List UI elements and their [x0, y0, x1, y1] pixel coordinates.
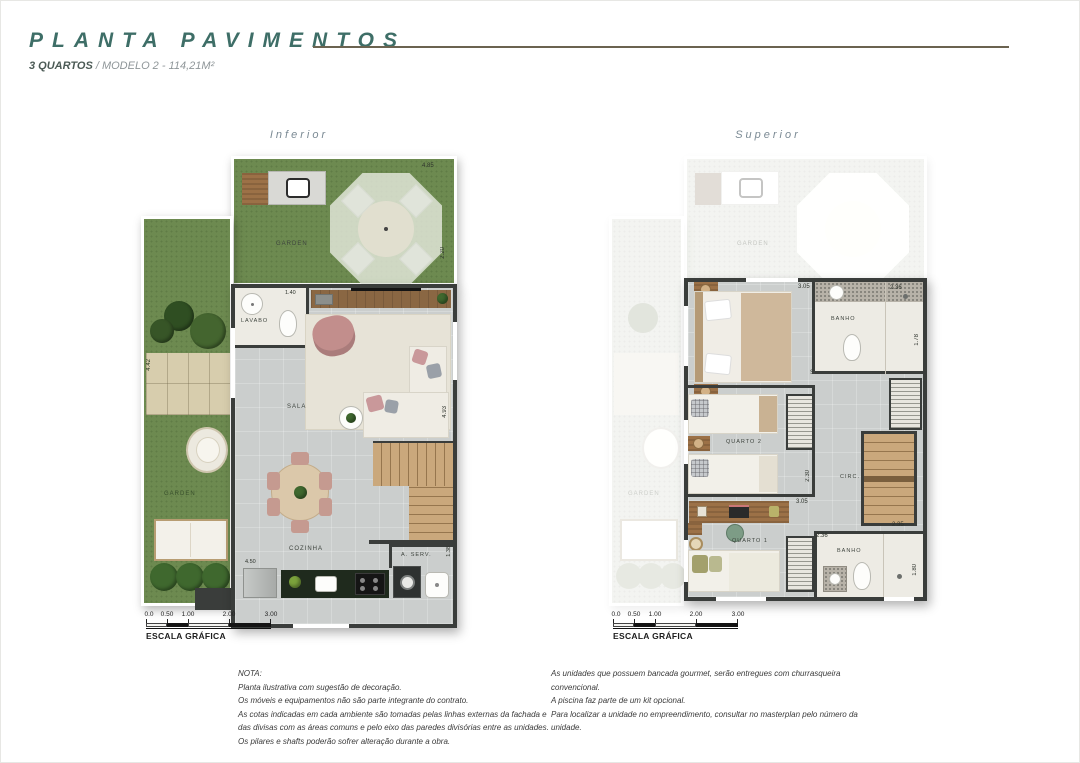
hanging-chair [186, 427, 228, 473]
ghost-grill-counter [721, 171, 779, 205]
note-line: Planta ilustrativa com sugestão de decor… [238, 681, 549, 695]
scale-label: ESCALA GRÁFICA [613, 631, 693, 641]
scale-tick: 0.50 [161, 611, 174, 618]
wall-aserv [389, 544, 453, 547]
window-icon [746, 278, 798, 282]
scale-bar-left: 0.0 0.50 1.00 2.00 3.00 ESCALA GRÁFICA [146, 611, 276, 647]
side-cabinet [688, 523, 702, 535]
room-label-sala: SALA [287, 404, 306, 410]
wall-aserv-stub [389, 544, 392, 568]
dining-chair [319, 498, 332, 516]
bath-divider [883, 534, 884, 597]
pillow [704, 353, 732, 376]
caption-inferior: Inferior [141, 129, 457, 141]
dim-suite-top: 3.05 [798, 284, 810, 290]
scale-bar [146, 623, 271, 629]
dining-chair [267, 498, 280, 516]
laptop-icon [729, 505, 749, 518]
dim-aserv: 1.38 [446, 546, 452, 557]
ghost-bench [620, 519, 678, 561]
subtitle-bold: 3 QUARTOS [29, 60, 93, 72]
plant-icon [190, 313, 226, 349]
garden-left: GARDEN 4.42 [141, 216, 233, 606]
garden-top: GARDEN 4.85 2.20 [231, 156, 457, 286]
ghost-umbrella-set [797, 173, 909, 285]
dining-chair [291, 452, 309, 465]
scale-bar [613, 623, 738, 629]
indoor-inferior: LAVABO 1.40 SALA 4.93 [231, 284, 457, 628]
desk-books [697, 506, 707, 517]
dining-chair [267, 472, 280, 490]
plant-icon [294, 486, 307, 499]
note-line: As unidades que possuem bancada gourmet,… [551, 667, 858, 681]
plant-icon [150, 319, 174, 343]
room-label-cozinha: COZINHA [289, 546, 323, 552]
note-line: convencional. [551, 681, 858, 695]
dim-banho-top: 2.36 [890, 285, 902, 291]
shrub-icon [176, 563, 204, 591]
shrub-icon [150, 563, 178, 591]
ghost-shrub-icon [660, 563, 686, 589]
room-banho-top: BANHO [812, 282, 923, 374]
scale-tick: 1.00 [649, 611, 662, 618]
shower-icon [903, 294, 908, 299]
decor-round [693, 438, 704, 449]
toilet-icon [853, 562, 871, 590]
wall-q2-q1 [688, 494, 814, 497]
umbrella-set [330, 173, 442, 285]
shrub-icon [202, 563, 230, 591]
ghost-room-label-garden-left: GARDEN [628, 491, 660, 497]
quarto2-bed1 [688, 394, 778, 434]
grill-sink-icon [286, 178, 310, 198]
sink-icon [829, 285, 844, 300]
note-line: Os pilares e shafts poderão sofrer alter… [238, 735, 549, 749]
dim-quarto1-top: 3.05 [796, 499, 808, 505]
coffee-table [339, 406, 363, 430]
room-label-garden: GARDEN [276, 241, 308, 247]
window-icon [716, 597, 766, 601]
room-label-banho-bottom: BANHO [837, 548, 862, 554]
garden-bench [154, 519, 228, 561]
burner [373, 586, 378, 591]
closet-quarto2 [786, 394, 814, 450]
caption-superior: Superior [609, 129, 927, 141]
ghost-canopy [797, 173, 909, 285]
bed-duvet [729, 553, 779, 591]
ghost-plant-icon [628, 303, 658, 333]
decor-round [689, 537, 703, 551]
sink-drain [251, 303, 254, 306]
kitchen-counter [281, 570, 389, 598]
ghost-garden-top: GARDEN [684, 156, 927, 286]
dim-kitchen: 4.50 [245, 559, 256, 565]
note-line: As cotas indicadas em cada ambiente são … [238, 708, 549, 722]
scale-tick: 0.0 [144, 611, 153, 618]
stair-landing [864, 476, 914, 482]
subtitle-rest: / MODELO 2 - 114,21M² [93, 60, 214, 72]
bed-headboard [695, 292, 703, 382]
pillow [691, 459, 709, 477]
ghost-hanging-chair [642, 427, 680, 469]
ghost-room-label-garden: GARDEN [737, 241, 769, 247]
toilet-icon [843, 334, 861, 361]
quarto2-bed2 [688, 454, 778, 494]
page-title: PLANTA PAVIMENTOS [29, 29, 406, 53]
window-icon [684, 306, 688, 366]
dim-garden-top: 4.85 [422, 163, 434, 169]
desk [689, 501, 789, 523]
note-line: Os móveis e equipamentos não são parte i… [238, 694, 549, 708]
room-label-garden-left: GARDEN [164, 491, 196, 497]
quarto1-bed [688, 550, 780, 592]
scale-tick: 1.00 [182, 611, 195, 618]
pillow [426, 363, 443, 380]
scale-tick: 2.00 [223, 611, 236, 618]
bath-divider [885, 282, 886, 374]
room-label-quarto2: QUARTO 2 [726, 439, 762, 445]
pillow [691, 399, 709, 417]
pillow [704, 299, 732, 322]
dim-banho-right: 1.78 [914, 334, 920, 346]
bench-divider [190, 523, 191, 557]
room-label-banho-top: BANHO [831, 316, 856, 322]
dim-banho2-right: 1.80 [912, 564, 918, 576]
ghost-pavers [614, 353, 679, 415]
floorplan-superior: GARDEN GARDEN [609, 156, 927, 632]
nightstand [688, 436, 710, 451]
decor-object [315, 294, 333, 305]
dim-garden-left: 4.42 [146, 359, 152, 371]
window-icon [453, 322, 457, 380]
brochure-page: PLANTA PAVIMENTOS 3 QUARTOS / MODELO 2 -… [0, 0, 1080, 763]
plant-icon [437, 293, 448, 304]
scale-label: ESCALA GRÁFICA [146, 631, 226, 641]
ghost-garden-left: GARDEN [609, 216, 684, 606]
stove-icon [355, 573, 385, 595]
grill-shelf [242, 173, 268, 205]
hanging-chair-cushion [196, 437, 220, 463]
stairs-lower-flight [409, 486, 453, 541]
shower-icon [897, 574, 902, 579]
room-label-quarto1: QUARTO 1 [732, 538, 768, 544]
dim-garden-right: 2.20 [440, 247, 446, 259]
bed-duvet [741, 293, 791, 381]
sideboard [311, 290, 451, 308]
bath-counter [823, 566, 847, 592]
stairs-superior [861, 431, 917, 526]
room-label-lavabo: LAVABO [241, 318, 268, 324]
notes-heading: NOTA: [238, 667, 549, 681]
title-rule [313, 46, 1009, 48]
room-lavabo: LAVABO 1.40 [235, 288, 309, 348]
scale-tick: 3.00 [732, 611, 745, 618]
room-label-aserv: A. SERV. [401, 552, 432, 558]
sink-icon [241, 293, 263, 315]
plant-icon [289, 576, 301, 588]
scale-tick: 0.50 [628, 611, 641, 618]
room-label-circ: CIRC. [840, 474, 860, 480]
scale-tick: 2.00 [690, 611, 703, 618]
scale-bar-right: 0.0 0.50 1.00 2.00 3.00 ESCALA GRÁFICA [613, 611, 743, 647]
desk-plant [769, 506, 779, 517]
dim-sala-right: 4.93 [442, 406, 448, 418]
washer-drum [400, 575, 415, 590]
wall-jog [195, 588, 233, 610]
pillow [384, 399, 399, 414]
pavers [146, 353, 230, 415]
grill-counter [268, 171, 326, 205]
notes-right: As unidades que possuem bancada gourmet,… [551, 667, 858, 735]
window-icon [293, 624, 349, 628]
burner [360, 586, 365, 591]
note-line: das divisas com as áreas comuns e pelo e… [238, 721, 549, 735]
umbrella-pole [384, 227, 388, 231]
bed-blanket [759, 456, 777, 492]
floorplan-inferior: GARDEN 4.85 2.20 GARDEN 4.42 [141, 156, 457, 632]
dim-stairs: 2.35 [892, 522, 904, 528]
suite-bed [694, 291, 792, 383]
tub-drain [435, 583, 439, 587]
page-subtitle: 3 QUARTOS / MODELO 2 - 114,21M² [29, 60, 214, 72]
scale-tick: 0.0 [611, 611, 620, 618]
closet-suite [889, 378, 922, 430]
washer-icon [393, 566, 421, 598]
notes-left: NOTA: Planta ilustrativa com sugestão de… [238, 667, 549, 748]
scale-tick: 3.00 [265, 611, 278, 618]
laundry-tub-icon [425, 572, 449, 598]
pillow [709, 556, 722, 572]
window-icon [884, 597, 914, 601]
dim-banho2-left: 2.36 [816, 533, 828, 539]
note-line: Para localizar a unidade no empreendimen… [551, 708, 858, 722]
dim-lavabo: 1.40 [285, 290, 296, 296]
closet-quarto1 [786, 536, 814, 592]
room-banho-bottom: BANHO [814, 531, 923, 597]
dining-chair [291, 520, 309, 533]
fridge-icon [243, 568, 277, 598]
sink-icon [829, 573, 841, 585]
stairs-upper-flight [373, 441, 453, 486]
tv-icon [351, 288, 421, 291]
plant-icon [346, 413, 356, 423]
note-line: unidade. [551, 721, 858, 735]
dining-chair [319, 472, 332, 490]
ghost-sink-icon [739, 178, 763, 198]
toilet-icon [279, 310, 297, 337]
bed-blanket [759, 396, 777, 432]
burner [373, 578, 378, 583]
wall-suite-q2 [688, 385, 814, 388]
kitchen-sink-icon [315, 576, 337, 592]
dim-quarto2: 2.30 [805, 470, 811, 482]
ghost-grill-shelf [695, 173, 721, 205]
note-line: A piscina faz parte de um kit opcional. [551, 694, 858, 708]
indoor-superior: SUÍTE 3.05 BANHO 2.36 1.78 [684, 278, 927, 601]
burner [360, 578, 365, 583]
pillow [692, 555, 708, 573]
